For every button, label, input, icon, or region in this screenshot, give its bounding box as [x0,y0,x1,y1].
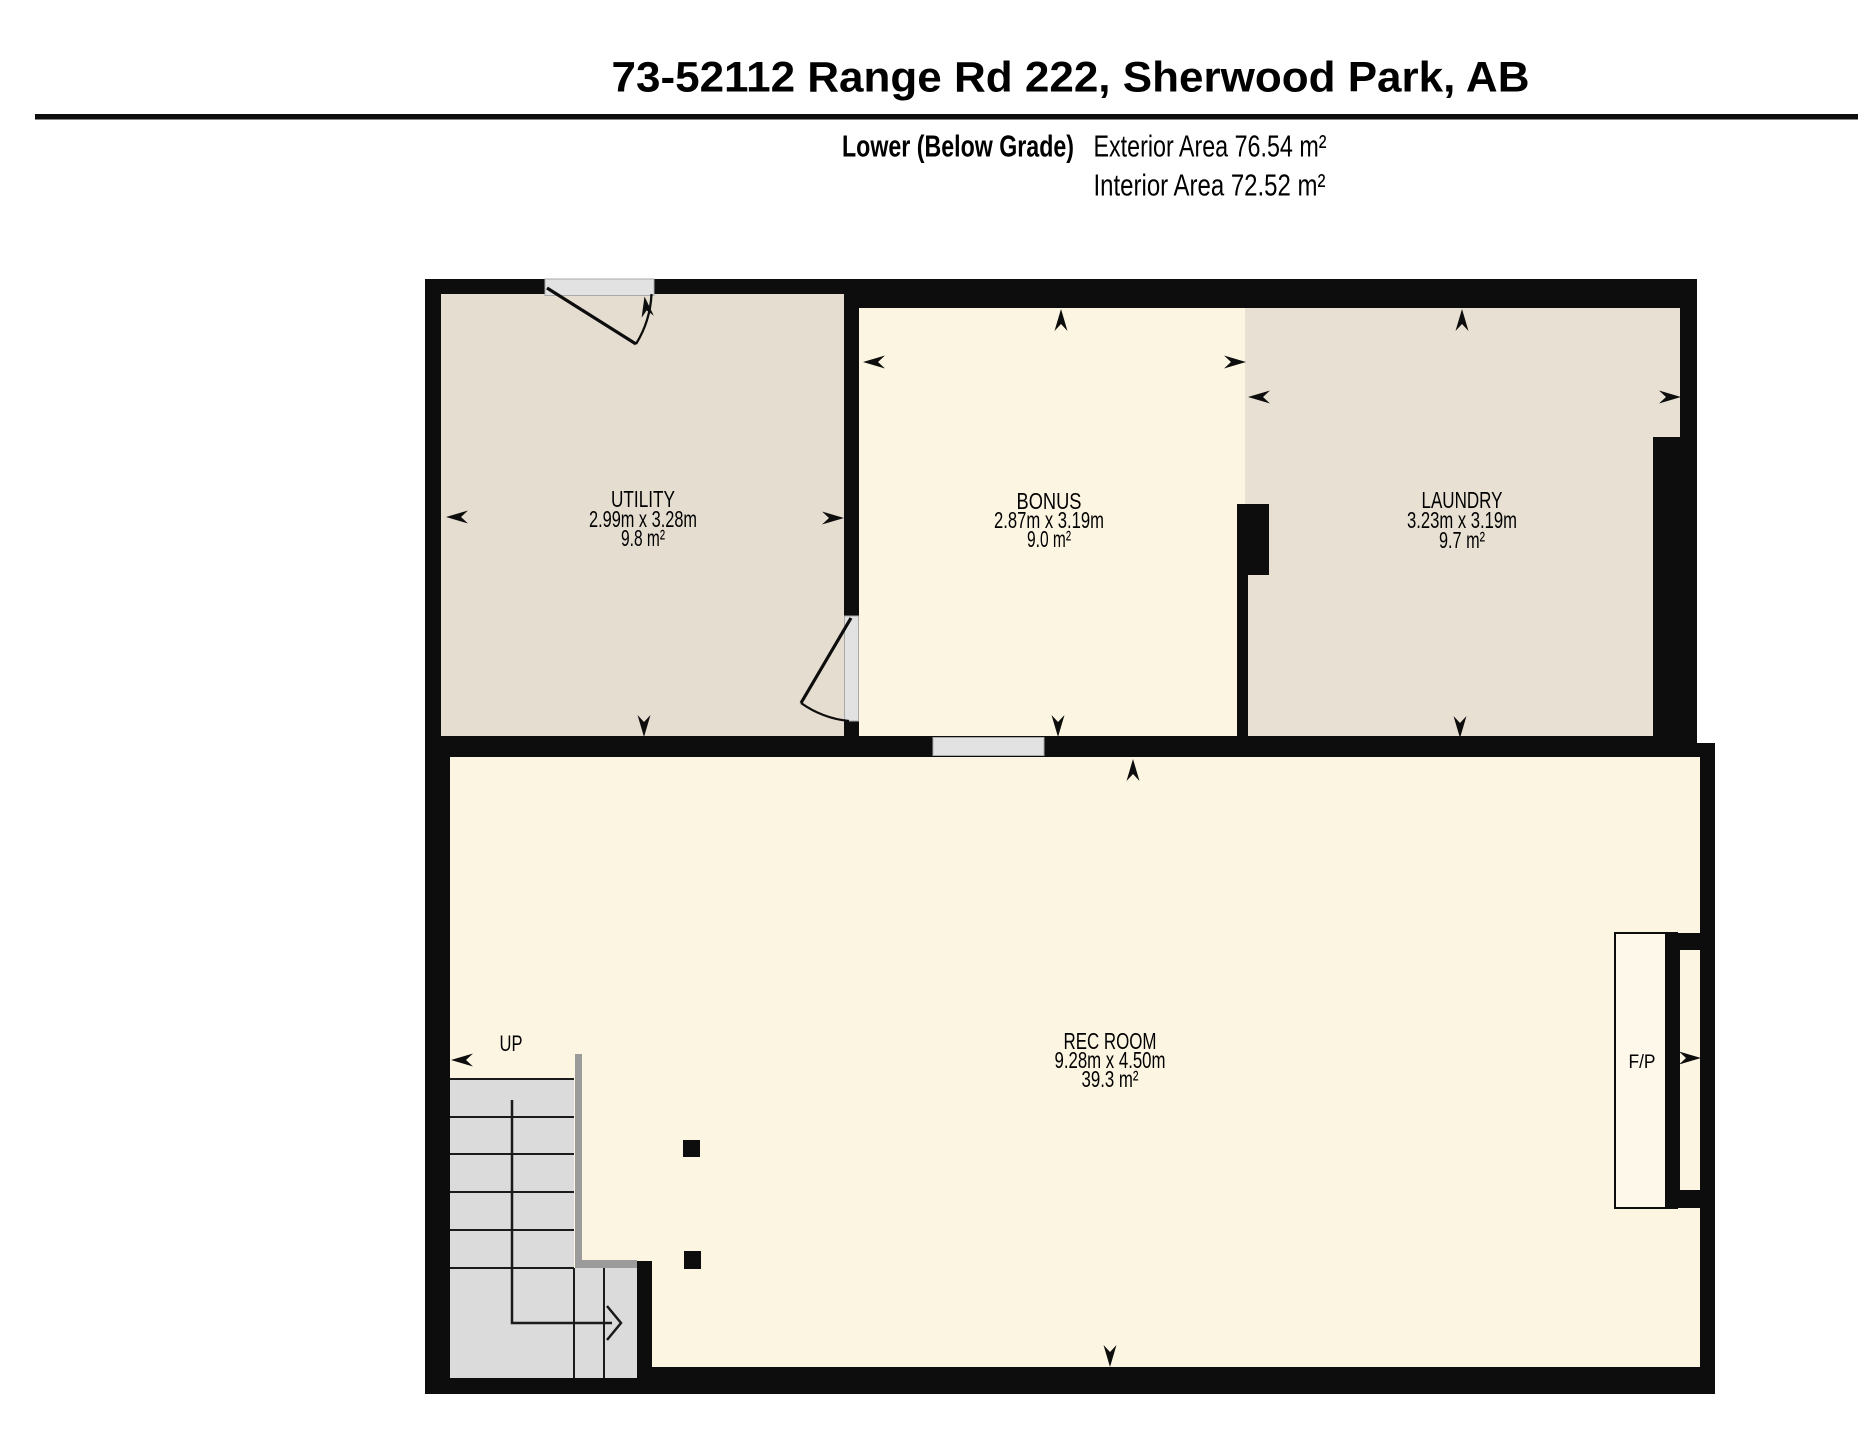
svg-text:UP: UP [500,1031,523,1056]
svg-text:Exterior Area 76.54 m²: Exterior Area 76.54 m² [1094,129,1327,164]
svg-text:73-52112 Range Rd 222, Sherwoo: 73-52112 Range Rd 222, Sherwood Park, AB [612,54,1530,102]
svg-text:Lower (Below Grade): Lower (Below Grade) [842,129,1074,164]
svg-text:9.0 m²: 9.0 m² [1027,526,1071,552]
svg-text:9.7 m²: 9.7 m² [1439,527,1485,553]
svg-text:F/P: F/P [1629,1051,1656,1073]
svg-text:Interior Area 72.52 m²: Interior Area 72.52 m² [1094,168,1326,203]
svg-text:39.3 m²: 39.3 m² [1082,1066,1139,1092]
svg-text:9.8 m²: 9.8 m² [621,525,665,551]
